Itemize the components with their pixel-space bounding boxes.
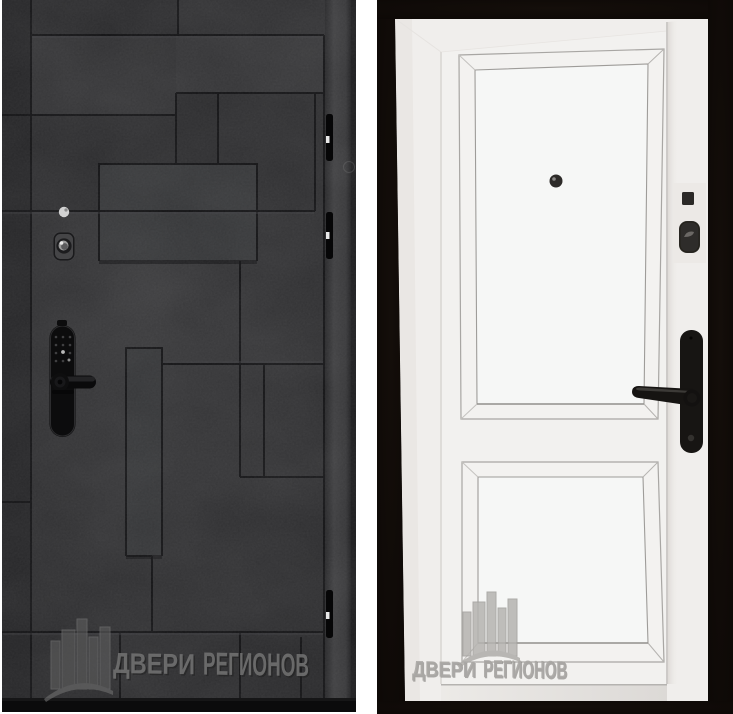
svg-text:РЕГИОНОВ: РЕГИОНОВ — [483, 655, 567, 684]
svg-text:ДВЕРИ: ДВЕРИ — [412, 656, 476, 682]
svg-text:ДВЕРИ: ДВЕРИ — [113, 648, 195, 681]
svg-text:РЕГИОНОВ: РЕГИОНОВ — [203, 645, 309, 683]
